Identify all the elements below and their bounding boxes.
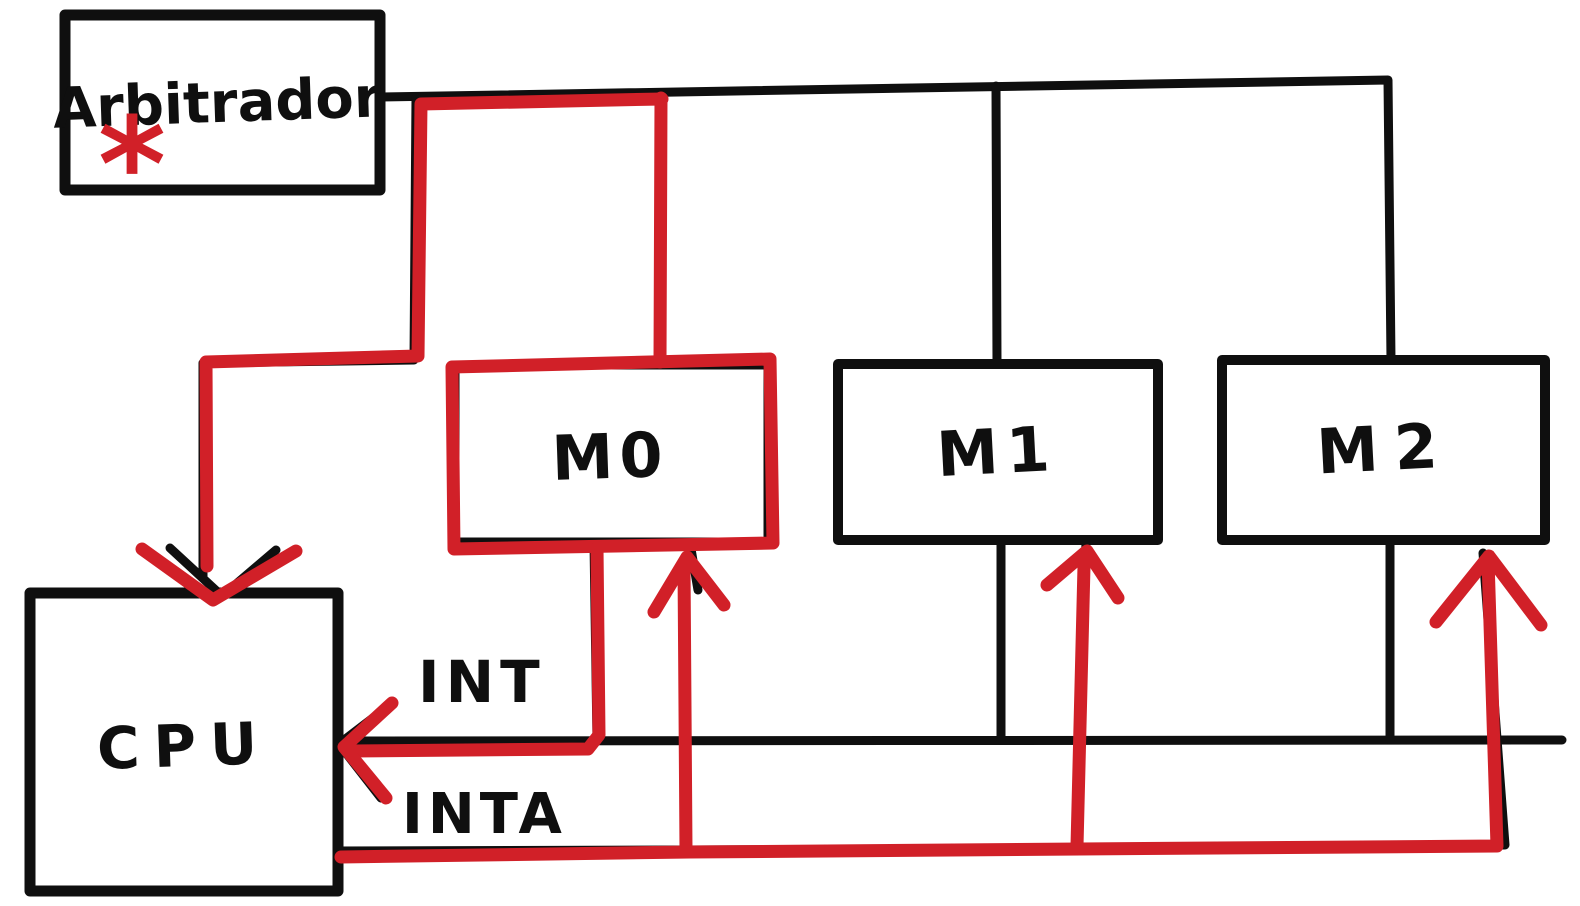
int-label: INT (418, 648, 546, 716)
sketch-canvas: Arbitrador * M0 M1 M2 CPU INT INTA (0, 0, 1580, 906)
top-bus-line (380, 80, 1391, 360)
arbiter-asterisk: * (98, 89, 166, 241)
m1-label: M1 (935, 412, 1059, 491)
int-line (340, 740, 1562, 741)
m0-inta-branch-red (684, 566, 686, 850)
cpu-label: CPU (96, 709, 272, 783)
m2-label: M2 (1315, 408, 1455, 488)
m1-bus-drop-line (996, 86, 997, 363)
inta-label: INTA (402, 782, 567, 847)
diagram-svg: Arbitrador * M0 M1 M2 CPU INT INTA (0, 0, 1580, 906)
m0-bus-drop-highlight (660, 98, 661, 362)
m0-label: M0 (550, 418, 669, 495)
m1-inta-branch-red (1077, 566, 1084, 846)
